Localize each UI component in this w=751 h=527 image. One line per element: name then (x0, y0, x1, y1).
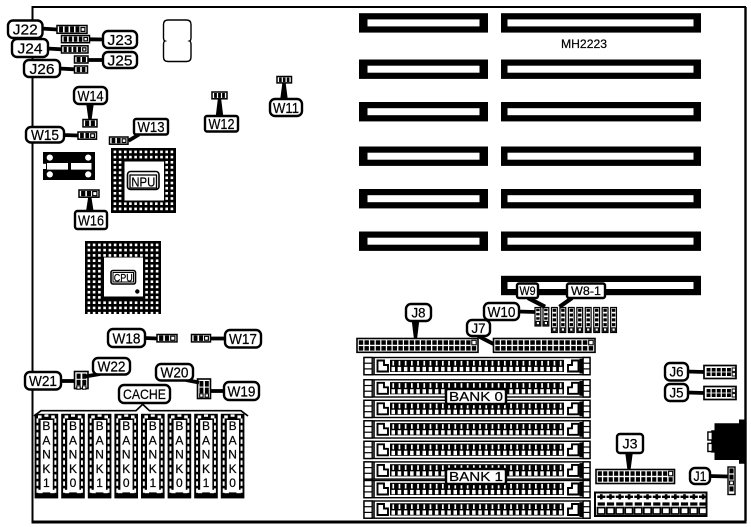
svg-text:N: N (202, 448, 211, 462)
svg-text:W14: W14 (78, 88, 104, 105)
svg-text:N: N (42, 448, 51, 462)
svg-text:1: 1 (43, 476, 50, 490)
svg-text:B: B (42, 419, 50, 433)
svg-text:N: N (95, 448, 104, 462)
svg-text:0: 0 (70, 476, 77, 490)
svg-text:W11: W11 (273, 100, 299, 117)
svg-text:A: A (42, 433, 50, 447)
svg-text:J3: J3 (623, 436, 638, 451)
svg-text:B: B (202, 419, 210, 433)
svg-text:0: 0 (229, 476, 236, 490)
svg-text:J25: J25 (108, 52, 133, 69)
svg-text:A: A (175, 433, 183, 447)
svg-text:B: B (122, 419, 130, 433)
svg-text:B: B (149, 419, 157, 433)
svg-text:W12: W12 (209, 116, 235, 133)
svg-text:W13: W13 (138, 119, 165, 136)
svg-text:A: A (229, 433, 237, 447)
svg-text:W16: W16 (78, 212, 104, 229)
svg-text:MH2223: MH2223 (561, 37, 607, 51)
svg-text:N: N (148, 448, 157, 462)
svg-text:A: A (122, 433, 130, 447)
svg-text:K: K (69, 462, 77, 476)
svg-text:B: B (229, 419, 237, 433)
svg-text:W18: W18 (113, 330, 141, 347)
svg-text:K: K (149, 462, 157, 476)
svg-text:NPU: NPU (131, 174, 155, 189)
svg-text:W17: W17 (229, 331, 257, 348)
svg-text:BANK 1: BANK 1 (449, 469, 503, 484)
svg-text:W20: W20 (161, 365, 189, 382)
svg-text:0: 0 (123, 476, 130, 490)
svg-text:N: N (228, 448, 237, 462)
svg-text:K: K (42, 462, 50, 476)
svg-text:J7: J7 (472, 321, 486, 336)
svg-text:N: N (175, 448, 184, 462)
svg-text:A: A (69, 433, 77, 447)
svg-text:W9: W9 (520, 284, 536, 298)
svg-text:1: 1 (149, 476, 156, 490)
svg-text:N: N (69, 448, 78, 462)
svg-text:A: A (149, 433, 157, 447)
svg-text:W10: W10 (488, 304, 516, 321)
svg-text:N: N (122, 448, 131, 462)
svg-text:K: K (229, 462, 237, 476)
svg-text:J8: J8 (412, 305, 426, 320)
svg-text:BANK 0: BANK 0 (449, 389, 503, 404)
svg-text:W19: W19 (228, 383, 256, 400)
svg-text:K: K (96, 462, 104, 476)
svg-text:K: K (202, 462, 210, 476)
svg-text:A: A (96, 433, 104, 447)
svg-text:K: K (122, 462, 130, 476)
svg-text:J22: J22 (13, 22, 38, 39)
svg-text:B: B (69, 419, 77, 433)
svg-text:J6: J6 (670, 365, 684, 380)
svg-text:K: K (175, 462, 183, 476)
svg-text:W15: W15 (31, 127, 59, 144)
svg-text:B: B (175, 419, 183, 433)
svg-text:J5: J5 (670, 385, 684, 400)
svg-text:1: 1 (96, 476, 103, 490)
svg-text:W21: W21 (29, 373, 57, 390)
svg-text:J26: J26 (30, 61, 55, 78)
svg-text:B: B (96, 419, 104, 433)
svg-text:W22: W22 (98, 359, 126, 376)
svg-text:CACHE: CACHE (123, 386, 166, 402)
svg-text:CPU: CPU (114, 272, 133, 284)
svg-text:A: A (202, 433, 210, 447)
svg-text:J24: J24 (18, 40, 43, 57)
svg-text:W8-1: W8-1 (571, 284, 601, 298)
svg-text:1: 1 (203, 476, 210, 490)
svg-text:J1: J1 (694, 469, 707, 484)
svg-text:0: 0 (176, 476, 183, 490)
svg-text:J23: J23 (108, 32, 133, 49)
